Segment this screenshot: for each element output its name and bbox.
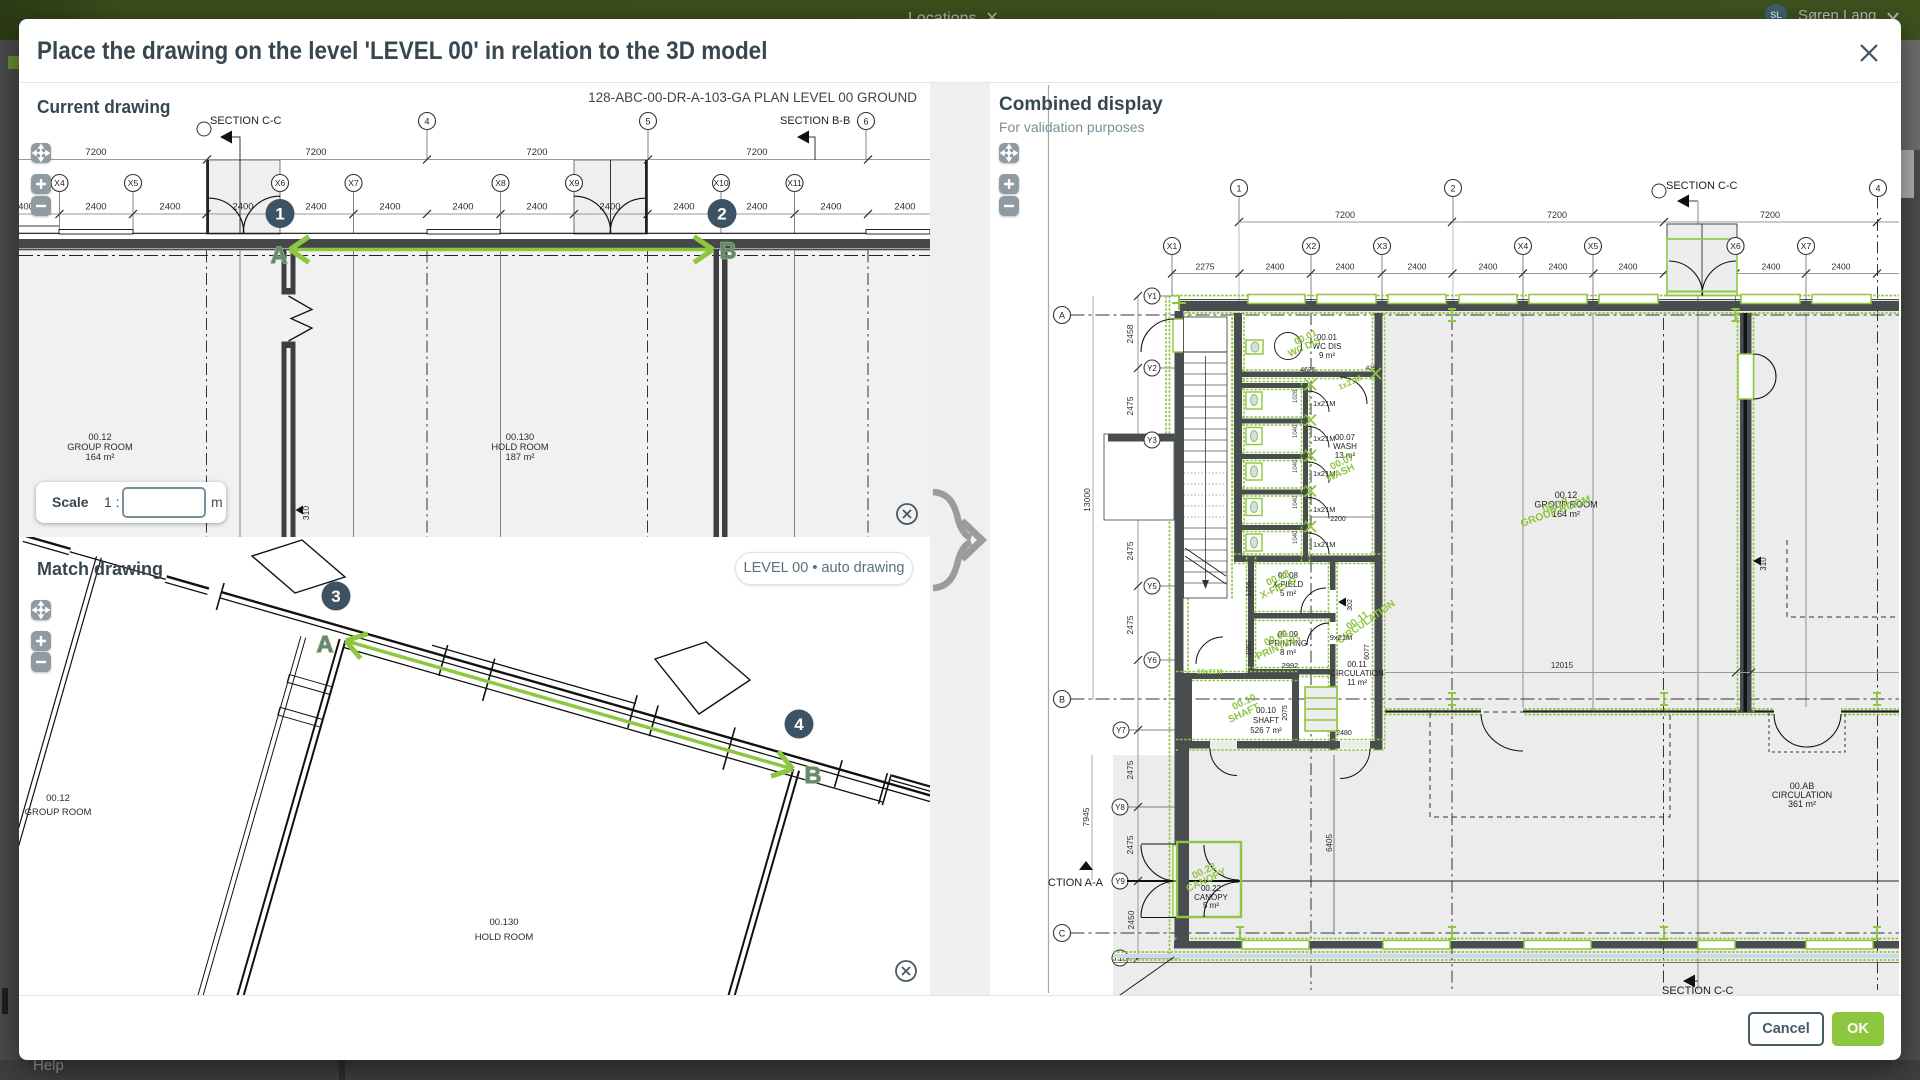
svg-text:2400: 2400 xyxy=(379,202,400,213)
svg-text:187 m²: 187 m² xyxy=(506,452,535,462)
svg-text:2400: 2400 xyxy=(1549,262,1568,272)
svg-text:7945: 7945 xyxy=(1081,807,1091,826)
svg-text:7200: 7200 xyxy=(746,147,767,158)
svg-text:B: B xyxy=(805,762,822,788)
svg-text:2400: 2400 xyxy=(1619,262,1638,272)
svg-text:X9: X9 xyxy=(569,178,580,188)
svg-text:2450: 2450 xyxy=(1126,910,1136,929)
svg-text:B: B xyxy=(1059,695,1065,705)
svg-text:00.12: 00.12 xyxy=(88,432,111,442)
svg-text:6405: 6405 xyxy=(1325,834,1334,852)
svg-text:GROUP ROOM: GROUP ROOM xyxy=(67,442,132,452)
svg-text:2400: 2400 xyxy=(746,202,767,213)
svg-text:Y1: Y1 xyxy=(1147,292,1157,301)
svg-text:10x21M: 10x21M xyxy=(1197,669,1222,676)
svg-text:361 m²: 361 m² xyxy=(1788,799,1816,809)
svg-text:526 7 m²: 526 7 m² xyxy=(1250,726,1282,735)
svg-text:Y6: Y6 xyxy=(1147,656,1157,665)
svg-text:4: 4 xyxy=(424,117,429,127)
svg-text:2475: 2475 xyxy=(1125,835,1135,854)
svg-text:302: 302 xyxy=(1347,599,1354,611)
svg-text:SECTION C-C: SECTION C-C xyxy=(210,115,282,127)
svg-text:WASH: WASH xyxy=(1333,442,1357,451)
svg-text:2480: 2480 xyxy=(1336,730,1352,737)
svg-text:6077: 6077 xyxy=(1364,644,1371,660)
svg-text:CIRCULATION: CIRCULATION xyxy=(1330,669,1384,678)
svg-text:X5: X5 xyxy=(128,178,139,188)
svg-text:X6: X6 xyxy=(1730,241,1741,251)
svg-text:00.07: 00.07 xyxy=(1335,433,1356,442)
svg-text:7200: 7200 xyxy=(526,147,547,158)
svg-text:Y8: Y8 xyxy=(1115,803,1125,812)
svg-text:X6: X6 xyxy=(275,178,286,188)
svg-text:00.130: 00.130 xyxy=(506,432,534,442)
svg-text:3: 3 xyxy=(331,587,340,606)
svg-text:2400: 2400 xyxy=(1479,262,1498,272)
svg-text:SECTION B-B: SECTION B-B xyxy=(780,115,850,127)
svg-text:1: 1 xyxy=(1236,184,1241,194)
svg-text:2: 2 xyxy=(717,205,726,224)
svg-text:13000: 13000 xyxy=(1082,488,1092,512)
svg-text:C: C xyxy=(1059,929,1066,939)
svg-text:X4: X4 xyxy=(54,178,65,188)
svg-text:2075: 2075 xyxy=(1282,705,1289,721)
svg-text:GROUP ROOM: GROUP ROOM xyxy=(25,807,92,818)
svg-text:B: B xyxy=(720,238,737,264)
svg-text:1040: 1040 xyxy=(1293,530,1299,544)
svg-text:2475: 2475 xyxy=(1125,396,1135,415)
svg-text:Y7: Y7 xyxy=(1116,726,1126,735)
svg-text:4625: 4625 xyxy=(1300,367,1316,374)
svg-text:2475: 2475 xyxy=(1125,541,1135,560)
svg-text:12015: 12015 xyxy=(1551,661,1574,670)
svg-text:1x21M: 1x21M xyxy=(1313,434,1336,443)
svg-text:7200: 7200 xyxy=(85,147,106,158)
svg-text:2400: 2400 xyxy=(1266,262,1285,272)
svg-text:SECTION C-C: SECTION C-C xyxy=(1662,985,1734,995)
svg-text:X11: X11 xyxy=(787,178,802,188)
svg-text:A: A xyxy=(271,242,288,268)
svg-text:2992: 2992 xyxy=(1282,661,1299,670)
svg-text:Y9: Y9 xyxy=(1115,877,1125,886)
svg-text:2400: 2400 xyxy=(820,202,841,213)
svg-text:HOLD ROOM: HOLD ROOM xyxy=(491,442,548,452)
svg-text:SHAFT: SHAFT xyxy=(1253,716,1279,725)
svg-text:00.130: 00.130 xyxy=(489,917,518,928)
svg-text:11 m²: 11 m² xyxy=(1347,678,1367,687)
svg-text:1: 1 xyxy=(275,205,284,224)
svg-text:2275: 2275 xyxy=(1196,262,1215,272)
svg-text:7200: 7200 xyxy=(1335,210,1355,220)
svg-text:SECTION C-C: SECTION C-C xyxy=(1666,180,1738,192)
svg-text:1957: 1957 xyxy=(1246,640,1253,656)
svg-text:HOLD ROOM: HOLD ROOM xyxy=(475,932,534,943)
svg-text:2400: 2400 xyxy=(85,202,106,213)
svg-text:310: 310 xyxy=(301,506,311,520)
svg-text:2400: 2400 xyxy=(305,202,326,213)
svg-text:Y5: Y5 xyxy=(1147,582,1157,591)
svg-text:7200: 7200 xyxy=(305,147,326,158)
svg-text:2400: 2400 xyxy=(1832,262,1851,272)
svg-text:A: A xyxy=(1059,311,1065,321)
svg-text:Y3: Y3 xyxy=(1147,436,1157,445)
svg-text:1040: 1040 xyxy=(1293,424,1299,438)
svg-text:X7: X7 xyxy=(348,178,359,188)
svg-text:1040: 1040 xyxy=(1293,459,1299,473)
svg-text:Y2: Y2 xyxy=(1147,364,1157,373)
svg-text:9x21M: 9x21M xyxy=(1330,633,1353,642)
svg-text:X7: X7 xyxy=(1801,241,1812,251)
svg-text:A: A xyxy=(317,631,334,657)
svg-text:310: 310 xyxy=(1759,557,1768,571)
svg-text:2400: 2400 xyxy=(526,202,547,213)
svg-text:4: 4 xyxy=(794,715,804,734)
svg-text:9 m²: 9 m² xyxy=(1319,351,1335,360)
svg-text:X8: X8 xyxy=(495,178,506,188)
svg-text:00.11: 00.11 xyxy=(1347,660,1367,669)
svg-text:X1: X1 xyxy=(1167,241,1178,251)
svg-text:1x21M: 1x21M xyxy=(1313,540,1336,549)
svg-text:X4: X4 xyxy=(1518,241,1529,251)
svg-text:X5: X5 xyxy=(1588,241,1599,251)
svg-text:1755: 1755 xyxy=(1246,581,1253,597)
svg-text:1x21M: 1x21M xyxy=(1313,505,1336,514)
svg-text:1040: 1040 xyxy=(1293,495,1299,509)
svg-text:2458: 2458 xyxy=(1125,324,1135,343)
svg-text:5 m²: 5 m² xyxy=(1203,901,1219,910)
svg-text:2475: 2475 xyxy=(1125,615,1135,634)
svg-text:X2: X2 xyxy=(1306,241,1317,251)
svg-text:2400: 2400 xyxy=(1408,262,1427,272)
svg-text:1x21M: 1x21M xyxy=(1313,399,1336,408)
svg-text:2400: 2400 xyxy=(673,202,694,213)
svg-text:CTION A-A: CTION A-A xyxy=(1048,877,1104,889)
svg-text:2400: 2400 xyxy=(1336,262,1355,272)
svg-text:6: 6 xyxy=(863,117,868,127)
svg-text:2400: 2400 xyxy=(452,202,473,213)
svg-text:00.12: 00.12 xyxy=(46,793,70,804)
svg-text:1028: 1028 xyxy=(1293,389,1299,403)
svg-text:2: 2 xyxy=(1450,184,1455,194)
svg-text:X3: X3 xyxy=(1377,241,1388,251)
svg-text:2400: 2400 xyxy=(159,202,180,213)
svg-text:7200: 7200 xyxy=(1760,210,1780,220)
svg-text:2400: 2400 xyxy=(1762,262,1781,272)
svg-text:5: 5 xyxy=(645,117,650,127)
svg-text:4: 4 xyxy=(1875,184,1880,194)
svg-text:2400: 2400 xyxy=(894,202,915,213)
svg-text:2475: 2475 xyxy=(1125,760,1135,779)
svg-text:X10: X10 xyxy=(713,178,728,188)
svg-text:7200: 7200 xyxy=(1547,210,1567,220)
svg-text:164 m²: 164 m² xyxy=(86,452,115,462)
